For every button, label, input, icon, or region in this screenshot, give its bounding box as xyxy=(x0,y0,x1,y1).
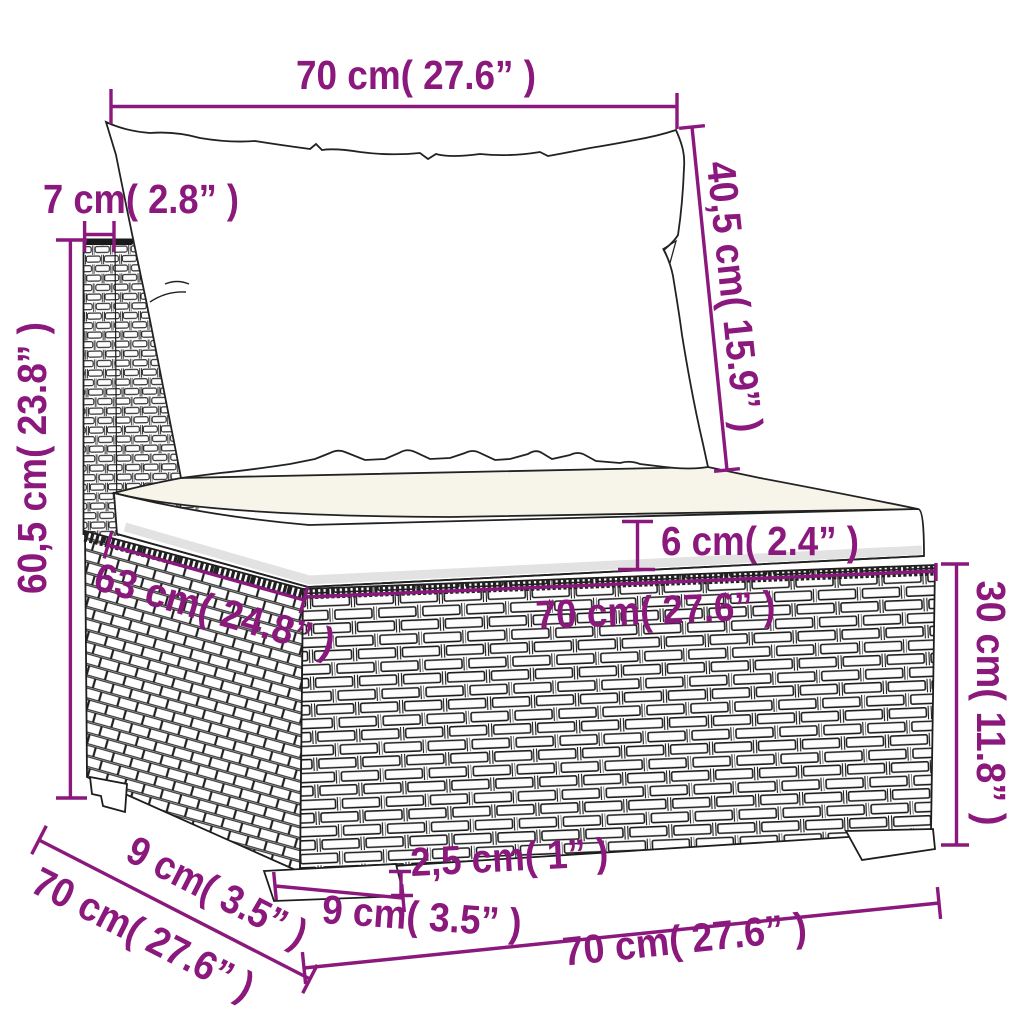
svg-text:30 cm( 11.8” ): 30 cm( 11.8” ) xyxy=(968,581,1014,826)
svg-text:60,5 cm( 23.8” ): 60,5 cm( 23.8” ) xyxy=(9,322,55,594)
svg-text:70 cm( 27.6” ): 70 cm( 27.6” ) xyxy=(296,52,536,98)
svg-text:6 cm( 2.4” ): 6 cm( 2.4” ) xyxy=(661,518,859,564)
svg-text:7 cm( 2.8” ): 7 cm( 2.8” ) xyxy=(43,176,239,222)
